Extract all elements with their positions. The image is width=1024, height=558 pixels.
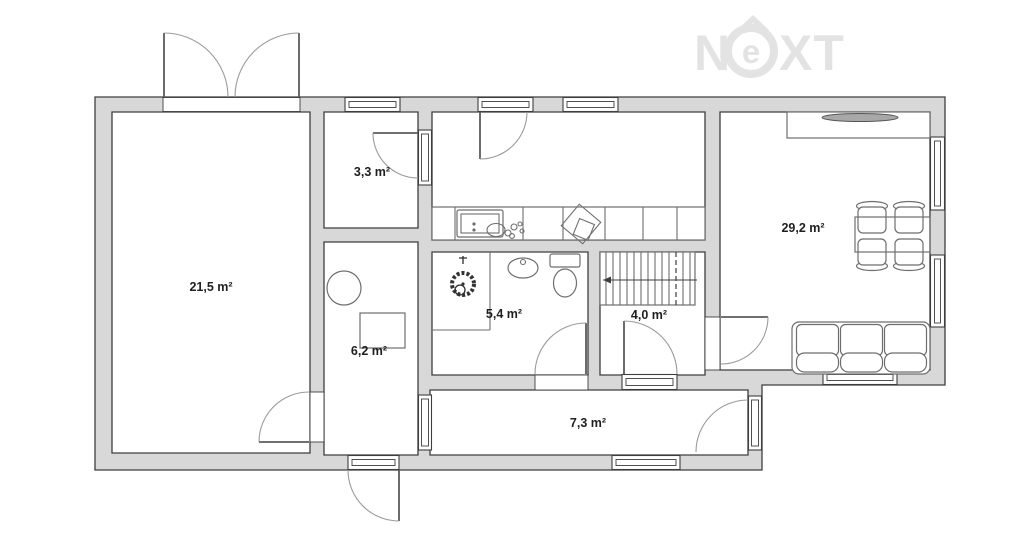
- label-closet: 3,3 m²: [354, 165, 390, 179]
- double-entrance-door: [164, 33, 299, 97]
- logo-letters-xt: XT: [779, 25, 845, 81]
- round-table-icon: [327, 271, 361, 305]
- bathroom-sink-icon: [508, 258, 538, 278]
- label-stair-room: 4,0 m²: [631, 308, 667, 322]
- door-threshold-hall-corridor: [419, 395, 432, 450]
- window-right-lower: [931, 255, 945, 327]
- dining-set: [855, 202, 930, 271]
- kitchen-door-threshold: [478, 98, 533, 112]
- entry-door-hall: [348, 470, 399, 521]
- stairs: [600, 252, 697, 305]
- door-living-room: [721, 317, 768, 364]
- living-room-furniture: [787, 112, 930, 374]
- tv-icon: [822, 114, 898, 122]
- dining-table-icon: [855, 217, 930, 252]
- double-door-opening: [163, 98, 300, 112]
- window-top-closet: [345, 98, 400, 112]
- door-stair-room: [624, 321, 677, 374]
- window-right-upper: [931, 137, 945, 210]
- hall-furniture: [327, 271, 405, 348]
- label-hall: 6,2 m²: [351, 344, 387, 358]
- door-kitchen-top: [480, 112, 527, 159]
- door-bathroom: [535, 323, 586, 374]
- entry-door-threshold-corridor: [749, 396, 762, 450]
- label-bathroom: 5,4 m²: [486, 307, 522, 321]
- large-room-door-opening: [310, 392, 324, 442]
- window-top-kitchen: [563, 98, 618, 112]
- entry-door-corridor: [696, 400, 748, 452]
- logo-letter-e: e: [742, 33, 760, 70]
- tv-sideboard: [787, 112, 930, 138]
- shower-valve: [459, 256, 467, 264]
- living-door-opening: [705, 317, 720, 370]
- window-corridor-bottom: [612, 456, 680, 470]
- label-corridor: 7,3 m²: [570, 416, 606, 430]
- floorplan-svg: N e XT: [0, 0, 1024, 558]
- next-logo: N e XT: [694, 15, 845, 81]
- kitchen-counter: [432, 204, 705, 243]
- cabinet-icon: [360, 313, 405, 348]
- toilet-icon: [550, 254, 580, 297]
- door-threshold-closet-kitchen: [419, 130, 432, 185]
- door-threshold-stair-room: [622, 375, 677, 390]
- bathroom-door-opening: [535, 375, 588, 390]
- label-large-room: 21,5 m²: [189, 280, 232, 294]
- floorplan-canvas: N e XT: [0, 0, 1024, 558]
- sofa-icon: [792, 322, 930, 374]
- entry-door-threshold-hall: [348, 456, 399, 470]
- label-living-room: 29,2 m²: [781, 221, 824, 235]
- door-large-room: [259, 392, 309, 442]
- shower-head-icon: [452, 256, 474, 295]
